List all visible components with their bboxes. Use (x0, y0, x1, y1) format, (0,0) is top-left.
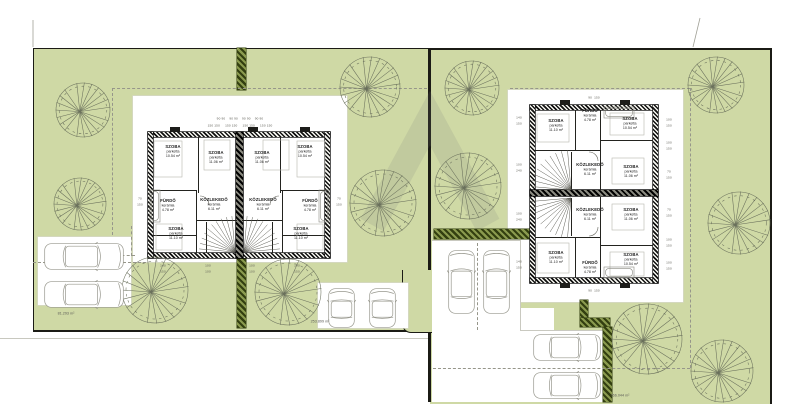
interior-wall (535, 237, 601, 238)
hedge-strip (237, 48, 246, 90)
wall-stub (620, 100, 630, 105)
left-party-wall (236, 132, 243, 258)
boundary-dashed (510, 88, 690, 89)
wall-stub (560, 100, 570, 105)
interior-wall (571, 198, 572, 236)
interior-wall (575, 237, 576, 278)
right-driveway-notch (518, 308, 554, 332)
hedge-strip (237, 258, 246, 328)
site-plan-canvas: SZOBA parketta 10.54 m²SZOBA parketta 11… (0, 0, 800, 404)
wall-stub (170, 127, 180, 132)
hedge-strip (603, 327, 612, 402)
hedge-strip (580, 318, 610, 327)
interior-wall (535, 150, 601, 151)
boundary-dashed (131, 226, 132, 256)
interior-wall (206, 222, 207, 253)
boundary-dashed (33, 262, 146, 263)
wall-stub (300, 127, 310, 132)
right-building-wall (530, 278, 658, 283)
boundary-dashed (433, 368, 690, 369)
driveway-edge (520, 240, 521, 330)
interior-wall (571, 152, 572, 190)
left-building-wall (325, 132, 330, 258)
interior-wall (196, 190, 197, 253)
driveway-edge (520, 330, 606, 331)
interior-wall (196, 220, 237, 221)
watermark-chevron (372, 118, 488, 225)
interior-wall (280, 137, 281, 193)
boundary-dashed (477, 243, 478, 330)
boundary-dashed (95, 255, 135, 256)
wall-stub (620, 283, 630, 288)
wall-stub (560, 283, 570, 288)
boundary-dashed (112, 88, 427, 89)
left-south-parking (318, 283, 408, 328)
street-edge (0, 338, 428, 339)
interior-wall (198, 137, 199, 193)
interior-wall (282, 190, 283, 253)
right-driveway-horizontal (432, 330, 605, 402)
right-building-wall (530, 105, 658, 110)
interior-wall (242, 220, 283, 221)
interior-wall (283, 235, 325, 236)
left-parking-area (38, 237, 131, 305)
interior-wall (153, 190, 197, 191)
interior-wall (153, 235, 196, 236)
wall-stub (248, 127, 258, 132)
interior-wall (281, 190, 325, 191)
boundary-dashed (690, 88, 691, 368)
interior-wall (272, 222, 273, 253)
left-building-wall (148, 132, 153, 258)
hedge-strip (434, 229, 535, 239)
interior-wall (600, 245, 653, 246)
interior-wall (600, 140, 653, 141)
right-party-wall (530, 190, 658, 196)
interior-wall (575, 110, 576, 151)
driveway-edge (432, 240, 520, 241)
boundary-dashed (112, 88, 113, 235)
